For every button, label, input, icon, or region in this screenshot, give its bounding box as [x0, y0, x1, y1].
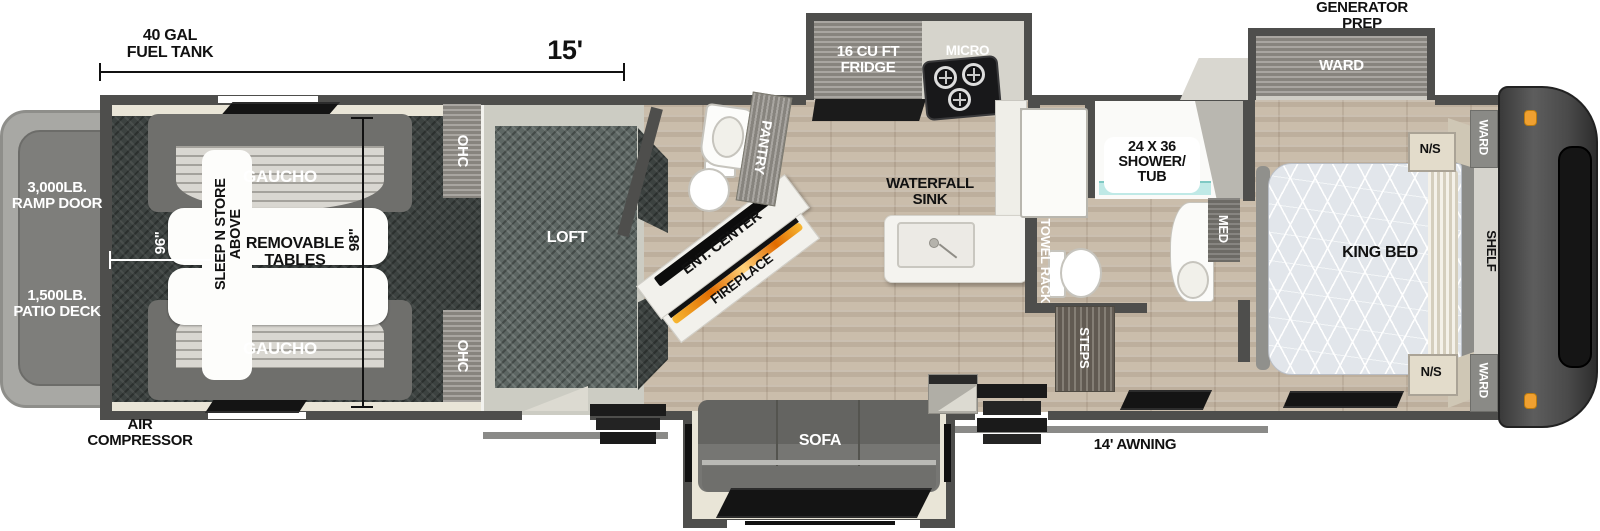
bed-wall-lower: [1238, 300, 1250, 362]
dim-98-tick-bottom: [351, 406, 373, 408]
front-cap: [1498, 86, 1598, 428]
generator-prep-label: GENERATOR PREP: [1298, 0, 1426, 32]
sofa-slide-window-right: [944, 424, 951, 482]
gaucho-top-label: GAUCHO: [180, 168, 380, 186]
ramp-door-label: 3,000LB. RAMP DOOR: [6, 180, 108, 212]
sink-drain: [929, 238, 939, 248]
shower-wall-right: [1243, 96, 1255, 201]
top-window: [218, 96, 318, 103]
dim-15ft-tick-left: [99, 63, 101, 81]
rv-floorplan: 40 GAL FUEL TANK 15' GENERATOR PREP 3,00…: [0, 0, 1600, 531]
ward-slide-label: WARD: [1256, 58, 1427, 74]
kitchen-island: [884, 215, 1028, 283]
bottom-window: [208, 412, 306, 419]
gaucho-bottom-label: GAUCHO: [180, 340, 380, 358]
sofa-slide-window-bottom-pane: [745, 521, 895, 525]
length-label: 15': [515, 36, 615, 64]
marker-light-top: [1524, 110, 1537, 126]
bath-sink: [1177, 261, 1209, 299]
ohc-bottom-label: OHC: [454, 321, 470, 391]
burner-2: [962, 63, 985, 86]
dim-98-tick-top: [351, 117, 373, 119]
cap-window: [1558, 146, 1592, 368]
bed-pillows: [1428, 170, 1458, 368]
waterfall-sink-label: WATERFALL SINK: [855, 176, 1005, 208]
fridge-label: 16 CU FT FRIDGE: [814, 44, 922, 76]
garage-steps: [588, 404, 668, 448]
towel-rack-label: TOWEL RACK: [1038, 205, 1052, 317]
shelf-label: SHELF: [1484, 221, 1498, 281]
removable-table-2: [168, 268, 388, 325]
shower-label: 24 X 36 SHOWER/ TUB: [1104, 140, 1200, 186]
dim-96-label: 96": [153, 220, 169, 266]
fuel-tank-label: 40 GAL FUEL TANK: [90, 28, 250, 62]
entry-steps: [977, 384, 1047, 446]
sofa-slide-window-left: [685, 424, 692, 482]
patio-deck-label: 1,500LB. PATIO DECK: [6, 288, 108, 320]
ohc-top-label: OHC: [454, 116, 470, 186]
fridge-counter: [812, 99, 926, 121]
loft-surface: [495, 126, 637, 388]
air-compressor-label: AIR COMPRESSOR: [60, 417, 220, 449]
sleep-store-label: SLEEP N STORE ABOVE: [214, 146, 244, 322]
sofa-label: SOFA: [700, 433, 940, 450]
dim-15ft-line: [100, 71, 625, 73]
dim-96-tick-left: [109, 251, 111, 269]
cap-wedge: [1180, 58, 1252, 100]
king-bed-label: KING BED: [1290, 245, 1470, 262]
half-bath-sink: [709, 114, 747, 160]
loft-label: LOFT: [497, 230, 637, 247]
ward-bottom-label: WARD: [1477, 352, 1490, 408]
window-bottom-bedroom: [1283, 391, 1404, 408]
window-bottom-mid: [1120, 390, 1212, 410]
ramp-door-panel: [18, 130, 110, 386]
ward-top-label: WARD: [1477, 109, 1490, 165]
dim-98-label: 98": [347, 217, 363, 263]
burner-1: [934, 66, 957, 89]
steps-label: STEPS: [1077, 304, 1091, 392]
towel-rack-cabinet: [1020, 108, 1088, 218]
bath-toilet: [1048, 246, 1100, 298]
bottom-wall-bedroom: [1048, 411, 1505, 420]
med-label: MED: [1216, 194, 1230, 264]
dim-15ft-tick-right: [623, 63, 625, 81]
sofa-floor-mat: [716, 488, 932, 518]
micro-label: MICRO: [925, 44, 1010, 58]
ns-top-label: N/S: [1408, 142, 1452, 156]
marker-light-bottom: [1524, 393, 1537, 409]
bath-wall-left-lower: [1025, 215, 1037, 310]
ns-bottom-label: N/S: [1408, 365, 1454, 379]
burner-3: [948, 88, 971, 111]
awning-label: 14' AWNING: [1055, 437, 1215, 453]
